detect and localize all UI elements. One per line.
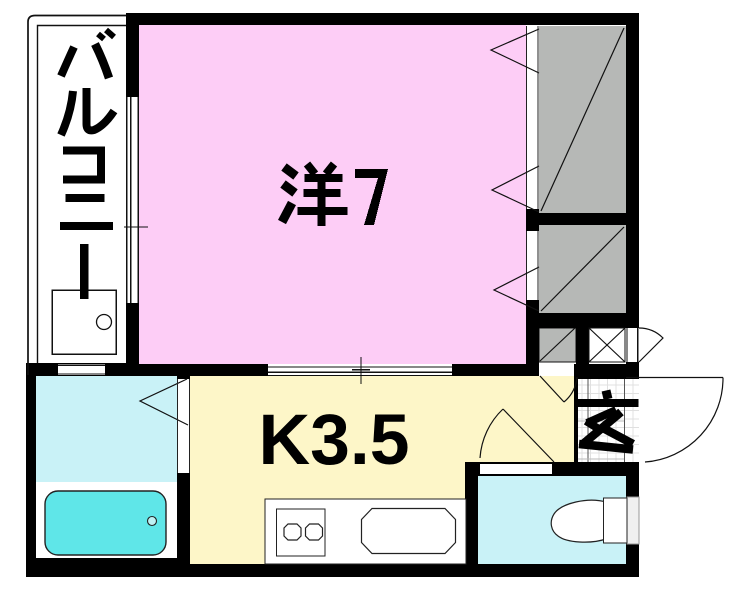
- svg-text:K3.5: K3.5: [259, 400, 410, 480]
